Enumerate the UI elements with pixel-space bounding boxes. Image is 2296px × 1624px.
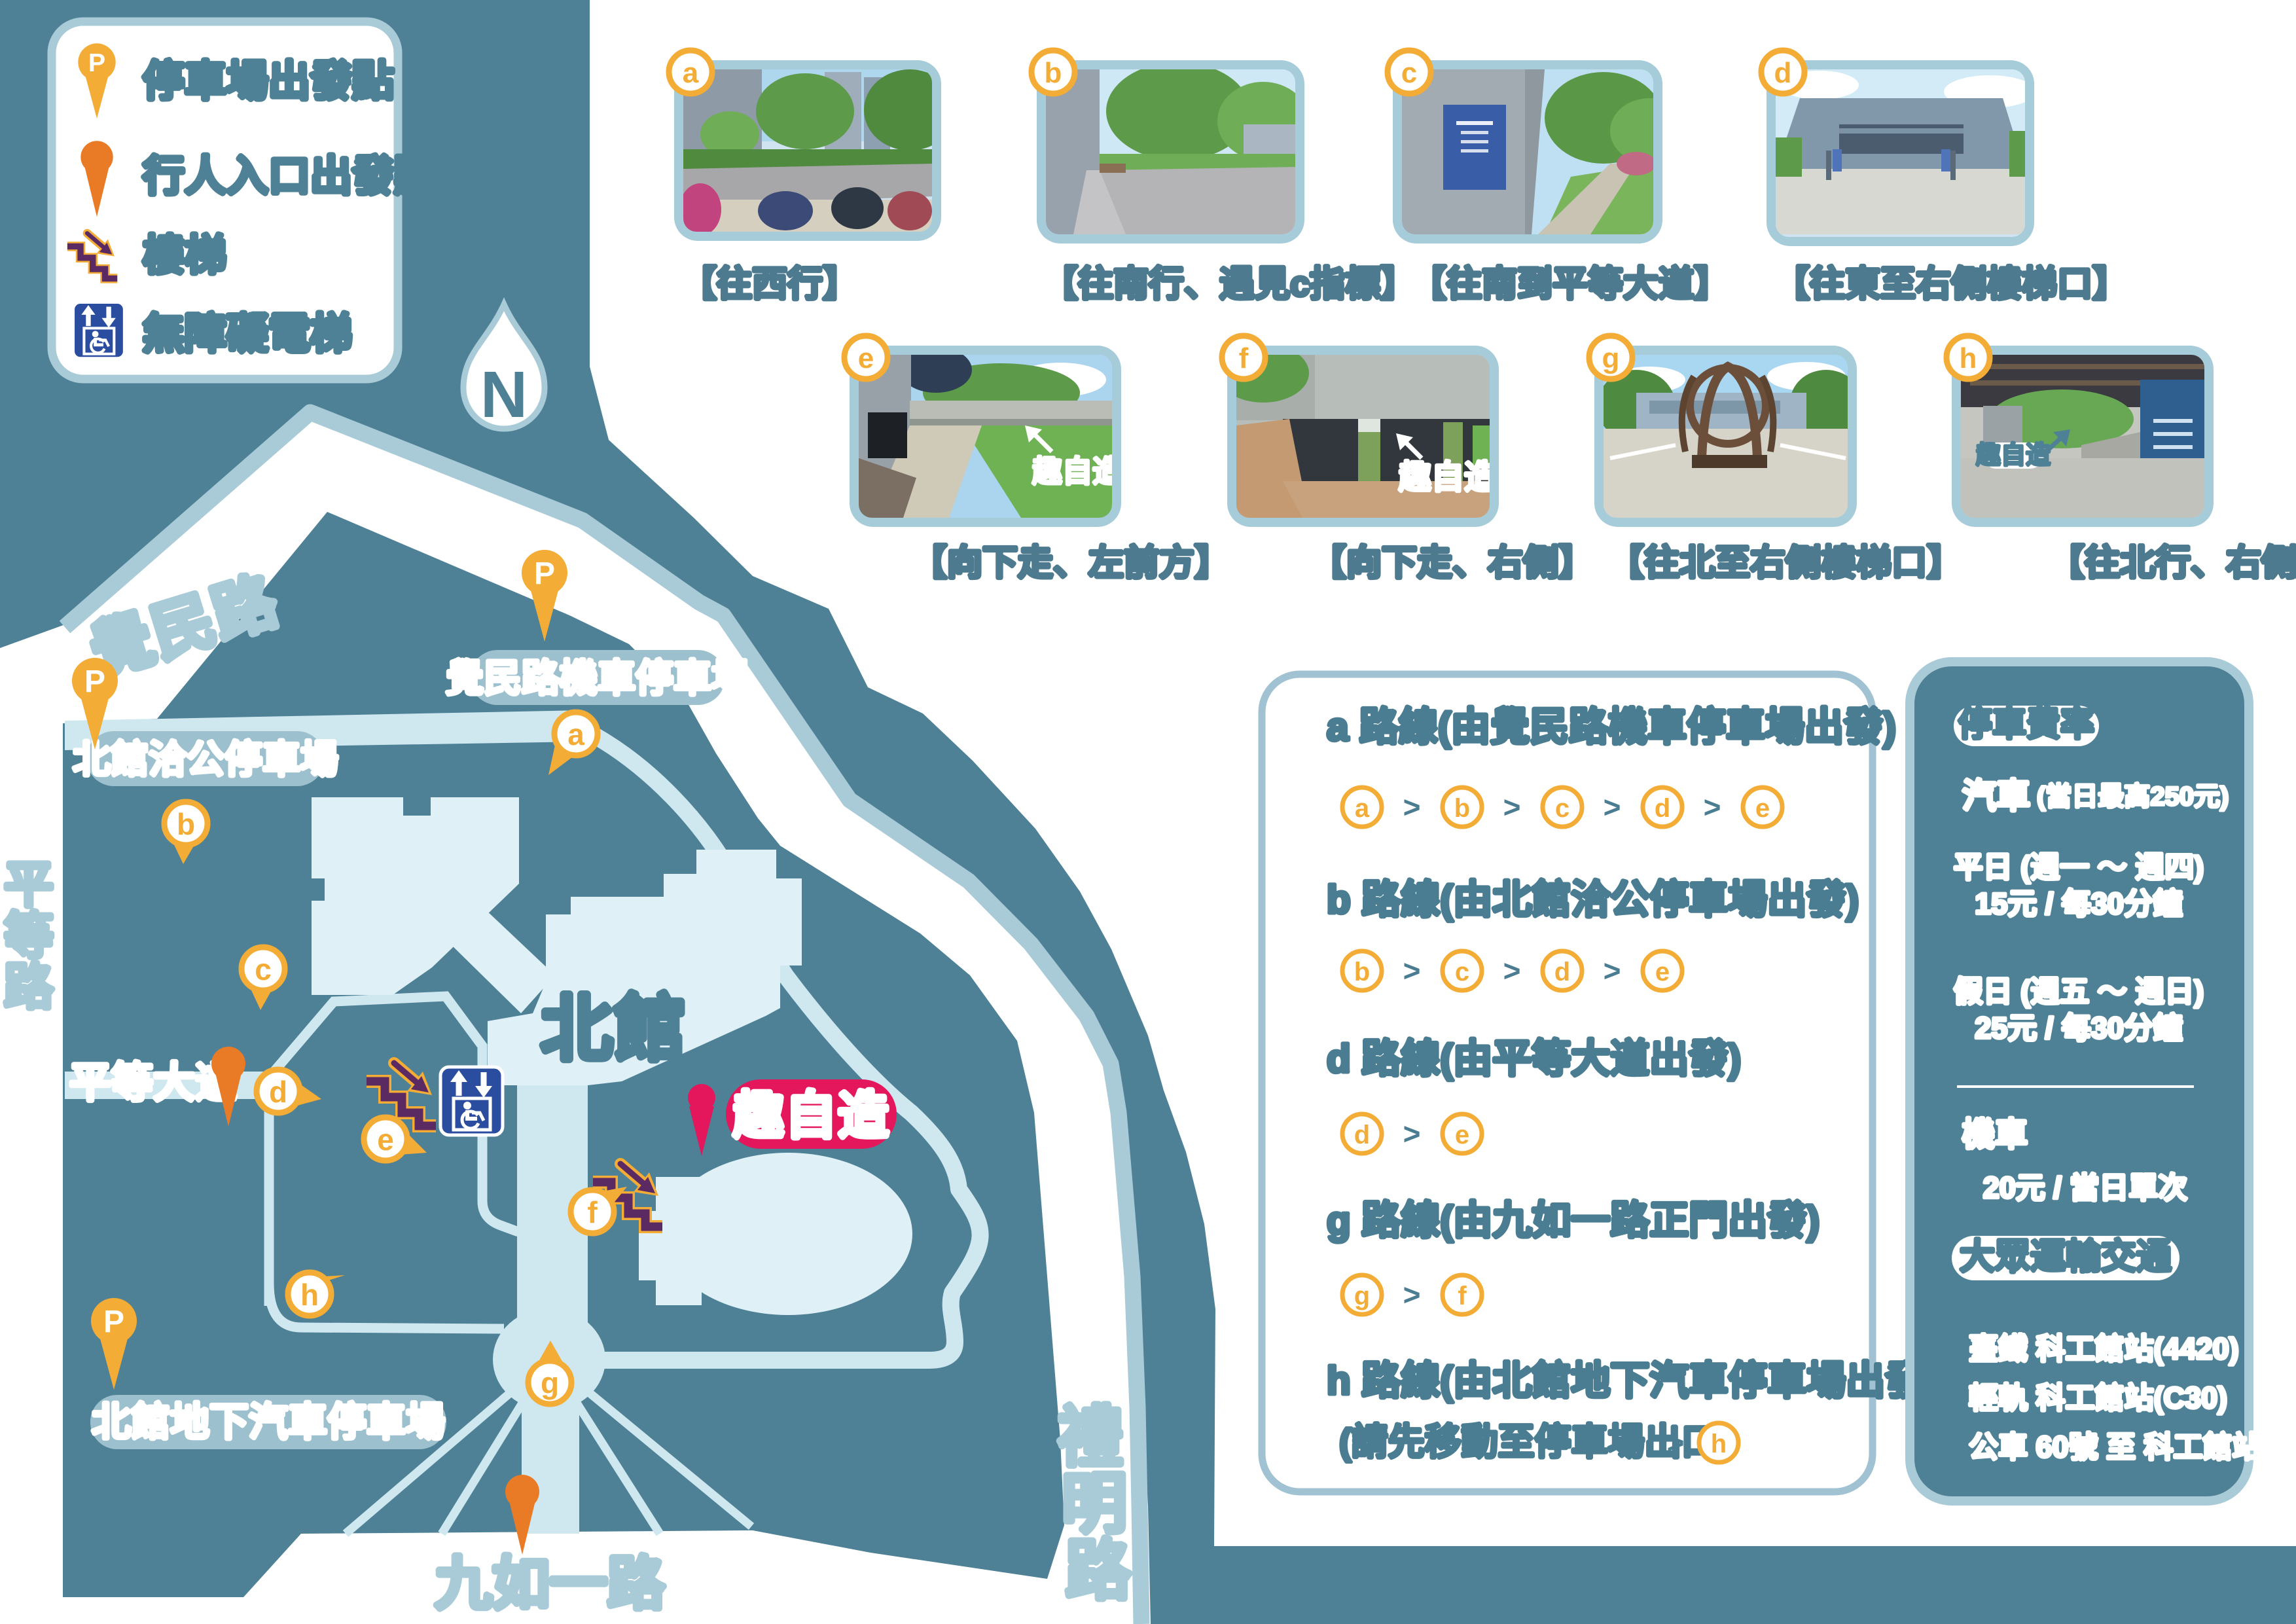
svg-text:h 路線(由北館地下汽車停車場出發): h 路線(由北館地下汽車停車場出發) — [1327, 1359, 1937, 1403]
svg-text:e: e — [1455, 1121, 1469, 1149]
svg-text:20元 / 當日單次: 20元 / 當日單次 — [1983, 1171, 2188, 1204]
svg-text:15元 / 每30分鐘: 15元 / 每30分鐘 — [1975, 887, 2183, 920]
svg-text:北館地下汽車停車場: 北館地下汽車停車場 — [92, 1400, 445, 1444]
svg-text:停車費率: 停車費率 — [1958, 706, 2094, 744]
svg-text:公車 60號 至 科工館站: 公車 60號 至 科工館站 — [1969, 1430, 2262, 1464]
svg-text:【向下走、右側】: 【向下走、右側】 — [1311, 543, 1594, 583]
svg-text:g 路線(由九如一路正門出發): g 路線(由九如一路正門出發) — [1327, 1199, 1820, 1242]
svg-text:輕軌 科工館站(C30): 輕軌 科工館站(C30) — [1969, 1381, 2227, 1415]
svg-text:【往西行】: 【往西行】 — [681, 264, 858, 304]
svg-text:c: c — [255, 952, 272, 986]
svg-text:>: > — [1503, 790, 1521, 824]
svg-text:停車場出發點: 停車場出發點 — [143, 58, 394, 105]
svg-text:c: c — [1455, 958, 1469, 986]
svg-text:【向下走、左前方】: 【向下走、左前方】 — [912, 543, 1230, 583]
svg-text:h: h — [300, 1278, 319, 1312]
svg-text:c: c — [1401, 57, 1417, 89]
svg-text:>: > — [1604, 954, 1621, 988]
svg-text:b: b — [177, 807, 195, 841]
svg-text:>: > — [1667, 1426, 1685, 1460]
svg-text:a 路線(由覺民路機車停車場出發): a 路線(由覺民路機車停車場出發) — [1327, 705, 1896, 749]
svg-text:趣自造: 趣自造 — [1399, 459, 1497, 496]
svg-text:d: d — [1655, 794, 1670, 823]
svg-text:a: a — [1355, 794, 1370, 823]
svg-text:b: b — [1045, 57, 1062, 89]
svg-text:等: 等 — [4, 909, 54, 964]
svg-text:趣自造: 趣自造 — [733, 1087, 890, 1144]
svg-text:>: > — [1403, 1117, 1421, 1151]
svg-text:【往北行、右側】: 【往北行、右側】 — [2049, 543, 2296, 583]
svg-text:路: 路 — [1066, 1534, 1132, 1608]
svg-text:【往東至右側樓梯口】: 【往東至右側樓梯口】 — [1774, 264, 2128, 304]
svg-text:a: a — [567, 717, 584, 751]
svg-text:>: > — [1704, 790, 1721, 824]
svg-text:【往南到平等大道】: 【往南到平等大道】 — [1411, 264, 1729, 304]
svg-text:b 路線(由北館洽公停車場出發): b 路線(由北館洽公停車場出發) — [1327, 878, 1859, 922]
svg-text:北館洽公停車場: 北館洽公停車場 — [73, 738, 338, 781]
svg-text:25元 / 每30分鐘: 25元 / 每30分鐘 — [1975, 1011, 2183, 1045]
svg-text:f: f — [587, 1195, 598, 1229]
svg-text:N: N — [480, 358, 528, 431]
svg-text:禮: 禮 — [1058, 1401, 1123, 1474]
svg-text:b: b — [1354, 958, 1370, 986]
svg-text:e: e — [377, 1123, 394, 1157]
svg-text:機車: 機車 — [1962, 1116, 2028, 1153]
svg-text:無障礙電梯: 無障礙電梯 — [143, 310, 352, 357]
svg-text:北館: 北館 — [541, 989, 687, 1070]
svg-text:d: d — [269, 1075, 287, 1109]
svg-text:樓梯: 樓梯 — [143, 232, 226, 279]
svg-text:行人入口出發點: 行人入口出發點 — [143, 153, 436, 200]
svg-text:趣自造: 趣自造 — [1976, 442, 2051, 469]
svg-text:e: e — [1755, 794, 1770, 823]
svg-text:【往北至右側樓梯口】: 【往北至右側樓梯口】 — [1609, 543, 1962, 583]
svg-text:g: g — [1354, 1282, 1370, 1310]
svg-text:d: d — [1554, 958, 1570, 986]
svg-text:d: d — [1774, 57, 1792, 89]
svg-text:>: > — [1503, 954, 1521, 988]
svg-text:(當日最高250元): (當日最高250元) — [2037, 782, 2229, 811]
svg-text:>: > — [1403, 1278, 1421, 1312]
svg-text:平: 平 — [4, 857, 54, 913]
svg-text:趣自造: 趣自造 — [1032, 454, 1122, 488]
svg-text:【往南行、遇見c指標】: 【往南行、遇見c指標】 — [1043, 264, 1416, 304]
svg-text:g: g — [1602, 342, 1620, 374]
svg-text:f: f — [1458, 1282, 1467, 1310]
svg-text:d 路線(由平等大道出發): d 路線(由平等大道出發) — [1327, 1037, 1741, 1081]
svg-text:h: h — [1711, 1430, 1727, 1458]
svg-text:a: a — [683, 57, 699, 89]
svg-text:h: h — [1960, 342, 1977, 374]
svg-text:>: > — [1604, 790, 1621, 824]
svg-text:e: e — [1655, 958, 1670, 986]
svg-text:汽車: 汽車 — [1962, 778, 2030, 816]
svg-text:九如一路: 九如一路 — [435, 1551, 666, 1616]
svg-text:b: b — [1454, 794, 1470, 823]
svg-text:臺鐵 科工館站(4420): 臺鐵 科工館站(4420) — [1969, 1332, 2239, 1365]
svg-text:明: 明 — [1062, 1468, 1127, 1541]
svg-text:路: 路 — [4, 960, 54, 1015]
svg-text:c: c — [1555, 794, 1570, 823]
svg-text:假日 (週五 ～ 週日): 假日 (週五 ～ 週日) — [1954, 975, 2204, 1008]
svg-text:>: > — [1403, 790, 1421, 824]
svg-text:d: d — [1354, 1121, 1370, 1149]
svg-text:大眾運輸交通: 大眾運輸交通 — [1960, 1237, 2172, 1276]
svg-text:f: f — [1239, 342, 1249, 374]
svg-text:e: e — [858, 342, 874, 374]
svg-text:>: > — [1403, 954, 1421, 988]
svg-text:覺民路機車停車場: 覺民路機車停車場 — [446, 657, 749, 700]
svg-text:g: g — [541, 1366, 559, 1400]
svg-text:平日 (週一 ～ 週四): 平日 (週一 ～ 週四) — [1954, 850, 2204, 884]
